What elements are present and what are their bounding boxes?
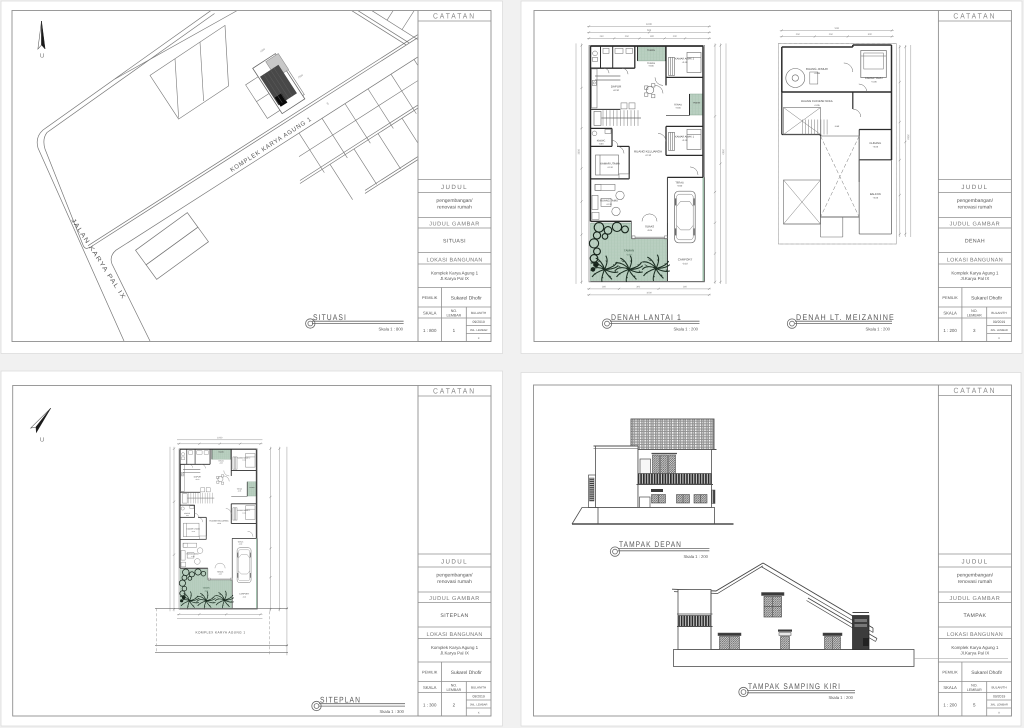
svg-text:Komplek Karya Agung 1: Komplek Karya Agung 1 bbox=[431, 270, 479, 275]
svg-text:Sukarel Dhofir: Sukarel Dhofir bbox=[971, 295, 1002, 301]
svg-text:1 : 300: 1 : 300 bbox=[423, 702, 437, 707]
svg-text:pengembangan/: pengembangan/ bbox=[957, 573, 994, 579]
svg-text:DENAH LT. MEIZANINE: DENAH LT. MEIZANINE bbox=[796, 313, 895, 322]
svg-text:JUDUL: JUDUL bbox=[441, 558, 468, 565]
svg-text:Jl.Karya Pal IX: Jl.Karya Pal IX bbox=[440, 276, 469, 281]
svg-text:SKALA: SKALA bbox=[943, 310, 957, 315]
svg-text:+0.00: +0.00 bbox=[677, 184, 683, 187]
svg-text:KOMPLEX KARYA AGUNG 1: KOMPLEX KARYA AGUNG 1 bbox=[196, 630, 246, 634]
svg-text:JML. LEMBAR: JML. LEMBAR bbox=[990, 704, 1008, 707]
svg-text:KAMAR TAMU: KAMAR TAMU bbox=[865, 77, 883, 80]
svg-text:-0.10: -0.10 bbox=[626, 253, 632, 256]
svg-text:1000: 1000 bbox=[646, 292, 652, 295]
svg-text:GUDANG: GUDANG bbox=[869, 142, 881, 145]
svg-text:250: 250 bbox=[600, 35, 605, 38]
svg-text:+3.05: +3.05 bbox=[873, 146, 879, 149]
svg-text:DENAH: DENAH bbox=[965, 239, 985, 245]
svg-text:1 : 200: 1 : 200 bbox=[943, 702, 957, 707]
svg-text:+0.10: +0.10 bbox=[606, 203, 612, 206]
svg-text:1 : 200: 1 : 200 bbox=[943, 328, 957, 333]
svg-text:-0.05: -0.05 bbox=[647, 229, 653, 232]
svg-text:-0.03: -0.03 bbox=[599, 142, 605, 145]
svg-text:renovasi rumah: renovasi rumah bbox=[958, 204, 993, 210]
svg-text:+3.08: +3.08 bbox=[814, 72, 821, 75]
svg-text:RUANG KELUARGA: RUANG KELUARGA bbox=[210, 519, 229, 522]
svg-text:592: 592 bbox=[835, 27, 840, 30]
svg-text:TERAS: TERAS bbox=[647, 62, 655, 65]
svg-text:KAMAR UTAMA: KAMAR UTAMA bbox=[187, 528, 200, 530]
svg-text:LEMBAR: LEMBAR bbox=[447, 688, 462, 692]
svg-text:JML. LEMBAR: JML. LEMBAR bbox=[990, 329, 1008, 332]
svg-text:+0.10: +0.10 bbox=[682, 61, 688, 64]
svg-text:+3.05: +3.05 bbox=[873, 197, 879, 200]
svg-text:-0.10: -0.10 bbox=[242, 596, 246, 598]
svg-text:SKALA: SKALA bbox=[943, 685, 957, 690]
svg-text:Jl.Karya Pal IX: Jl.Karya Pal IX bbox=[961, 276, 990, 281]
svg-text:LOKASI BANGUNAN: LOKASI BANGUNAN bbox=[426, 257, 482, 263]
svg-text:TERAS: TERAS bbox=[237, 488, 243, 490]
svg-text:DENAH LANTAI 1: DENAH LANTAI 1 bbox=[611, 313, 682, 322]
svg-text:09/2019: 09/2019 bbox=[993, 320, 1005, 324]
svg-text:250: 250 bbox=[625, 35, 630, 38]
svg-text:PEMILIK: PEMILIK bbox=[422, 295, 438, 300]
svg-text:RUANG KELUARGA: RUANG KELUARGA bbox=[634, 149, 662, 153]
svg-text:Skala 1 : 200: Skala 1 : 200 bbox=[866, 327, 891, 332]
svg-text:JUDUL GAMBAR: JUDUL GAMBAR bbox=[949, 221, 1000, 227]
svg-text:SITEPLAN: SITEPLAN bbox=[440, 613, 468, 619]
svg-text:Skala 1 : 300: Skala 1 : 300 bbox=[380, 709, 405, 714]
svg-text:JUDUL GAMBAR: JUDUL GAMBAR bbox=[429, 596, 480, 602]
svg-text:300: 300 bbox=[683, 286, 688, 289]
svg-text:CATATAN: CATATAN bbox=[953, 12, 996, 21]
svg-text:KAMAR ANAK 1: KAMAR ANAK 1 bbox=[237, 510, 250, 512]
svg-text:NO.: NO. bbox=[451, 309, 457, 313]
svg-text:BULAN/TH: BULAN/TH bbox=[991, 686, 1006, 690]
svg-text:+0.10: +0.10 bbox=[242, 512, 246, 514]
svg-text:Sukarel Dhofir: Sukarel Dhofir bbox=[971, 670, 1002, 676]
svg-text:+0.10: +0.10 bbox=[217, 523, 222, 525]
svg-text:SKALA: SKALA bbox=[423, 310, 437, 315]
svg-text:+0.10: +0.10 bbox=[645, 154, 652, 157]
svg-text:+0.05: +0.05 bbox=[648, 65, 654, 68]
svg-text:LOKASI BANGUNAN: LOKASI BANGUNAN bbox=[426, 632, 482, 638]
svg-text:300: 300 bbox=[602, 286, 607, 289]
svg-text:JUDUL GAMBAR: JUDUL GAMBAR bbox=[429, 221, 480, 227]
svg-text:KAMAR UTAMA: KAMAR UTAMA bbox=[600, 162, 620, 165]
svg-text:NO.: NO. bbox=[451, 683, 457, 687]
svg-text:TAMPAK DEPAN: TAMPAK DEPAN bbox=[619, 540, 682, 549]
svg-text:+0.10: +0.10 bbox=[682, 139, 688, 142]
svg-text:1000: 1000 bbox=[217, 436, 223, 439]
svg-text:SITUASI: SITUASI bbox=[313, 313, 347, 322]
svg-text:pengembangan/: pengembangan/ bbox=[957, 198, 994, 204]
svg-text:Sukarel Dhofir: Sukarel Dhofir bbox=[451, 670, 482, 676]
svg-text:JUDUL: JUDUL bbox=[961, 558, 988, 565]
svg-text:300: 300 bbox=[650, 35, 655, 38]
svg-text:LEMBAR: LEMBAR bbox=[447, 313, 462, 317]
svg-text:KM/WC: KM/WC bbox=[597, 139, 606, 142]
svg-text:Skala 1 : 200: Skala 1 : 200 bbox=[674, 327, 699, 332]
svg-text:TAMPAK SAMPING KIRI: TAMPAK SAMPING KIRI bbox=[748, 682, 841, 691]
svg-text:LEMBAR: LEMBAR bbox=[967, 313, 982, 317]
svg-text:KAMAR ANAK 1: KAMAR ANAK 1 bbox=[675, 135, 695, 138]
svg-text:1000: 1000 bbox=[646, 23, 652, 26]
svg-text:-0.03: -0.03 bbox=[186, 515, 190, 517]
svg-text:CARPORT: CARPORT bbox=[239, 593, 249, 596]
svg-text:+3.05: +3.05 bbox=[871, 81, 877, 84]
svg-text:+0.10: +0.10 bbox=[242, 459, 246, 461]
svg-text:Komplek Karya Agung 1: Komplek Karya Agung 1 bbox=[951, 645, 999, 650]
svg-text:Komplek Karya Agung 1: Komplek Karya Agung 1 bbox=[951, 270, 999, 275]
svg-text:pengembangan/: pengembangan/ bbox=[436, 573, 473, 579]
svg-text:CATATAN: CATATAN bbox=[433, 12, 476, 21]
svg-text:Jl.Karya Pal IX: Jl.Karya Pal IX bbox=[440, 651, 469, 656]
svg-text:JML. LEMBAR: JML. LEMBAR bbox=[470, 329, 488, 332]
svg-text:LOKASI BANGUNAN: LOKASI BANGUNAN bbox=[947, 257, 1003, 263]
svg-text:TAMAN: TAMAN bbox=[624, 248, 634, 252]
svg-text:TERAS: TERAS bbox=[218, 460, 224, 462]
svg-text:NO.: NO. bbox=[971, 309, 977, 313]
svg-text:renovasi rumah: renovasi rumah bbox=[437, 579, 472, 585]
svg-text:Skala 1 : 800: Skala 1 : 800 bbox=[379, 327, 404, 332]
svg-text:+0.10: +0.10 bbox=[613, 89, 620, 92]
svg-text:TERAS: TERAS bbox=[217, 570, 223, 573]
svg-text:TERAS: TERAS bbox=[675, 181, 684, 184]
svg-text:TAMAN: TAMAN bbox=[249, 487, 254, 489]
svg-text:U: U bbox=[40, 437, 44, 444]
svg-text:+0.10: +0.10 bbox=[195, 479, 199, 481]
svg-text:RUANG JEMUR: RUANG JEMUR bbox=[806, 67, 829, 71]
svg-text:CATATAN: CATATAN bbox=[953, 386, 996, 395]
svg-text:renovasi rumah: renovasi rumah bbox=[958, 579, 993, 585]
svg-text:392: 392 bbox=[636, 286, 641, 289]
svg-text:+0.05: +0.05 bbox=[219, 462, 223, 464]
svg-text:+3.05: +3.05 bbox=[814, 104, 820, 107]
svg-text:250: 250 bbox=[796, 33, 801, 36]
svg-text:BALKON: BALKON bbox=[870, 193, 881, 196]
svg-text:PEMILIK: PEMILIK bbox=[942, 670, 958, 675]
svg-text:renovasi rumah: renovasi rumah bbox=[437, 204, 472, 210]
svg-text:TAMPAK: TAMPAK bbox=[963, 613, 986, 619]
svg-text:2560: 2560 bbox=[906, 134, 909, 140]
svg-text:U: U bbox=[40, 53, 44, 60]
svg-text:PEMILIK: PEMILIK bbox=[942, 295, 958, 300]
svg-text:KAMAR ANAK 2: KAMAR ANAK 2 bbox=[237, 457, 250, 459]
svg-text:BULAN/TH: BULAN/TH bbox=[471, 686, 486, 690]
svg-text:09/2019: 09/2019 bbox=[473, 695, 485, 699]
svg-text:JUDUL: JUDUL bbox=[441, 184, 468, 191]
svg-text:SITEPLAN: SITEPLAN bbox=[320, 695, 361, 704]
svg-text:TAMAN: TAMAN bbox=[647, 49, 655, 52]
svg-text:JUDUL GAMBAR: JUDUL GAMBAR bbox=[950, 596, 1001, 602]
svg-text:-0.05: -0.05 bbox=[218, 573, 222, 575]
svg-text:+0.00: +0.00 bbox=[239, 543, 243, 545]
svg-text:592: 592 bbox=[647, 29, 652, 32]
svg-text:pengembangan/: pengembangan/ bbox=[436, 198, 473, 204]
svg-text:BULAN/TH: BULAN/TH bbox=[471, 311, 486, 315]
svg-text:DAPUR: DAPUR bbox=[611, 84, 622, 88]
svg-text:+0.05: +0.05 bbox=[238, 490, 242, 492]
svg-text:JUDUL: JUDUL bbox=[961, 184, 988, 191]
svg-text:1 : 800: 1 : 800 bbox=[423, 328, 437, 333]
svg-text:LOKASI BANGUNAN: LOKASI BANGUNAN bbox=[947, 632, 1003, 638]
svg-text:200: 200 bbox=[673, 35, 678, 38]
svg-text:-0.10: -0.10 bbox=[682, 262, 688, 265]
svg-text:Sukarel Dhofir: Sukarel Dhofir bbox=[451, 295, 482, 301]
svg-text:CARPORT: CARPORT bbox=[678, 257, 693, 261]
svg-text:09/2019: 09/2019 bbox=[473, 320, 485, 324]
svg-text:+0.10: +0.10 bbox=[607, 166, 613, 169]
svg-text:LEMBAR: LEMBAR bbox=[967, 688, 982, 692]
svg-text:Skala 1 : 200: Skala 1 : 200 bbox=[829, 695, 854, 700]
svg-text:TAMAN: TAMAN bbox=[693, 101, 701, 104]
svg-text:Skala 1 : 200: Skala 1 : 200 bbox=[684, 554, 709, 559]
svg-text:RUANG TAMU: RUANG TAMU bbox=[187, 553, 199, 555]
svg-text:TERAS: TERAS bbox=[238, 541, 244, 543]
svg-text:2560: 2560 bbox=[722, 149, 725, 155]
svg-text:TERAS: TERAS bbox=[645, 224, 654, 228]
svg-text:TERAS: TERAS bbox=[674, 103, 682, 106]
svg-text:3035: 3035 bbox=[578, 149, 581, 155]
svg-text:300: 300 bbox=[868, 33, 873, 36]
svg-text:Jl.Karya Pal IX: Jl.Karya Pal IX bbox=[961, 651, 990, 656]
svg-text:RUANG TAMU: RUANG TAMU bbox=[600, 199, 618, 202]
svg-text:+0.10: +0.10 bbox=[191, 556, 195, 558]
svg-text:250: 250 bbox=[829, 33, 834, 36]
svg-text:SKALA: SKALA bbox=[423, 685, 437, 690]
svg-text:TAMAN: TAMAN bbox=[203, 587, 210, 590]
svg-text:CATATAN: CATATAN bbox=[433, 387, 476, 396]
svg-text:DAPUR: DAPUR bbox=[194, 475, 202, 478]
svg-text:KM/WC: KM/WC bbox=[184, 513, 190, 515]
svg-text:NO.: NO. bbox=[971, 683, 977, 687]
svg-text:Komplek Karya Agung 1: Komplek Karya Agung 1 bbox=[431, 645, 479, 650]
svg-text:BULAN/TH: BULAN/TH bbox=[991, 311, 1006, 315]
svg-text:TAMAN: TAMAN bbox=[218, 451, 224, 453]
svg-text:+0.10: +0.10 bbox=[191, 531, 195, 533]
svg-text:RUANG CUCI&SETRIKA: RUANG CUCI&SETRIKA bbox=[801, 99, 833, 103]
svg-text:KAMAR ANAK 2: KAMAR ANAK 2 bbox=[675, 57, 695, 60]
svg-text:JML. LEMBAR: JML. LEMBAR bbox=[470, 704, 488, 707]
svg-text:PEMILIK: PEMILIK bbox=[422, 670, 438, 675]
svg-text:SITUASI: SITUASI bbox=[443, 239, 466, 245]
svg-text:+0.05: +0.05 bbox=[675, 106, 681, 109]
svg-text:09/2019: 09/2019 bbox=[993, 695, 1005, 699]
svg-text:-0.10: -0.10 bbox=[204, 590, 208, 592]
